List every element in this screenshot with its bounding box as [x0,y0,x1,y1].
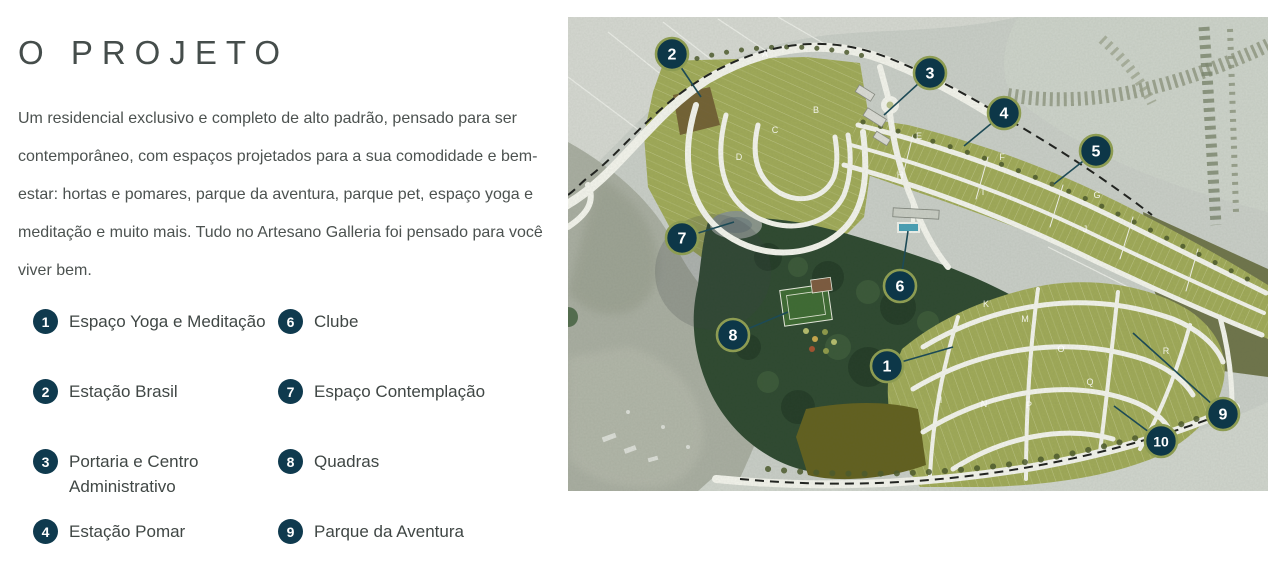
map-marker-number: 1 [883,359,892,376]
intro-paragraph: Um residencial exclusivo e completo de a… [18,100,548,290]
legend-column-2: 6Clube7Espaço Contemplação8Quadras9Parqu… [278,309,578,567]
legend-number-badge: 4 [33,519,58,544]
legend-item-3: 3Portaria e Centro Administrativo [33,449,278,519]
legend-item-label: Estação Brasil [69,379,178,404]
block-label-J: J [1083,224,1088,234]
map-marker-number: 10 [1153,434,1169,450]
legend-number-badge: 2 [33,379,58,404]
map-marker-number: 8 [729,328,738,345]
block-label-R: R [1163,346,1170,356]
legend-item-4: 4Estação Pomar [33,519,278,567]
block-label-G: G [1093,190,1100,200]
legend-item-label: Quadras [314,449,379,474]
block-label-E: E [916,131,922,141]
block-label-N: N [981,399,988,409]
map-marker-7: 7 [666,222,698,254]
map-marker-number: 4 [1000,106,1009,123]
legend-item-label: Espaço Contemplação [314,379,485,404]
legend-number-badge: 3 [33,449,58,474]
legend-item-8: 8Quadras [278,449,578,519]
map-marker-number: 3 [926,66,935,83]
legend-item-9: 9Parque da Aventura [278,519,578,567]
masterplan-map: ABCDEFGHIJKMORQINP 12345678910 [568,17,1268,491]
map-marker-6: 6 [884,270,916,302]
map-marker-number: 7 [678,231,687,248]
block-label-P: P [1026,400,1032,410]
map-marker-9: 9 [1207,398,1239,430]
legend-item-label: Espaço Yoga e Meditação [69,309,266,334]
legend-number-badge: 1 [33,309,58,334]
legend-item-2: 2Estação Brasil [33,379,278,449]
map-marker-5: 5 [1080,135,1112,167]
block-label-B: B [813,105,819,115]
legend-number-badge: 8 [278,449,303,474]
block-label-M: M [1021,314,1029,324]
block-label-C: C [772,125,779,135]
block-label-D: D [736,152,743,162]
page-title: O PROJETO [18,34,289,72]
legend-number-badge: 6 [278,309,303,334]
block-label-A: A [762,49,768,59]
map-marker-number: 5 [1092,144,1101,161]
legend-number-badge: 7 [278,379,303,404]
legend-item-1: 1Espaço Yoga e Meditação [33,309,278,379]
block-label-Q: Q [1086,377,1093,387]
block-label-I: I [982,187,985,197]
map-marker-3: 3 [914,57,946,89]
legend-item-label: Parque da Aventura [314,519,464,544]
legend-item-label: Clube [314,309,358,334]
block-label-K: K [983,299,989,309]
masterplan-svg: ABCDEFGHIJKMORQINP 12345678910 [568,17,1268,491]
legend-number-badge: 9 [278,519,303,544]
map-marker-number: 2 [668,47,677,64]
map-marker-1: 1 [871,350,903,382]
project-section: O PROJETO Um residencial exclusivo e com… [0,0,1268,567]
legend-item-7: 7Espaço Contemplação [278,379,578,449]
block-label-O: O [1057,344,1064,354]
legend-item-label: Portaria e Centro Administrativo [69,449,274,499]
map-marker-8: 8 [717,319,749,351]
legend-item-label: Estação Pomar [69,519,185,544]
map-marker-number: 6 [896,279,905,296]
block-label-I: I [940,395,943,405]
block-label-H: H [897,170,904,180]
map-marker-2: 2 [656,38,688,70]
legend-item-6: 6Clube [278,309,578,379]
legend: 1Espaço Yoga e Meditação2Estação Brasil3… [33,309,578,567]
map-marker-4: 4 [988,97,1020,129]
map-marker-10: 10 [1145,425,1177,457]
map-marker-number: 9 [1219,407,1228,424]
block-label-F: F [999,152,1005,162]
legend-column-1: 1Espaço Yoga e Meditação2Estação Brasil3… [33,309,278,567]
